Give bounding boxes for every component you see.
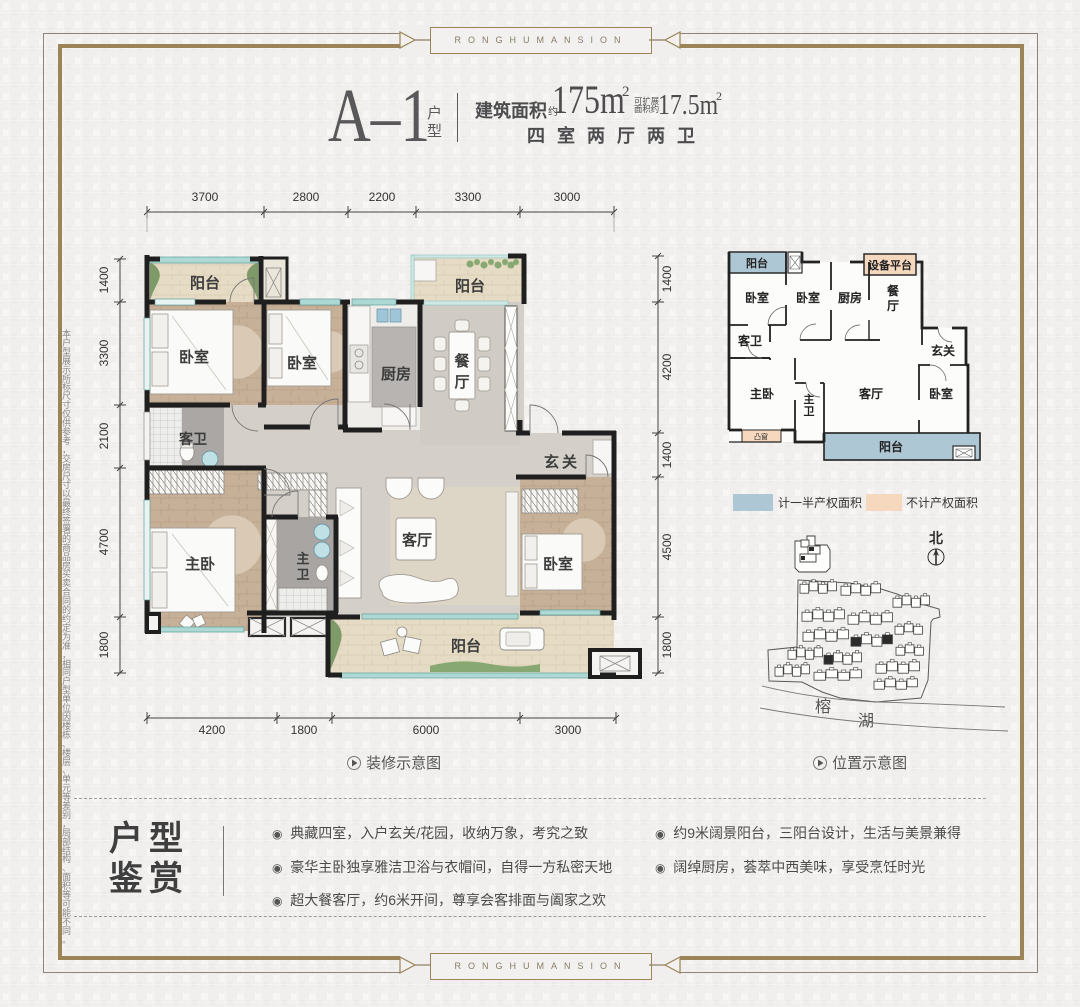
svg-text:3300: 3300 bbox=[97, 339, 111, 366]
svg-text:客卫: 客卫 bbox=[178, 431, 207, 447]
svg-text:1400: 1400 bbox=[97, 266, 111, 293]
svg-text:1800: 1800 bbox=[97, 631, 111, 658]
svg-text:计一半产权面积: 计一半产权面积 bbox=[778, 496, 862, 510]
svg-text:3300: 3300 bbox=[455, 190, 482, 204]
svg-text:3000: 3000 bbox=[555, 723, 582, 737]
svg-text:厨房: 厨房 bbox=[381, 365, 411, 383]
svg-text:玄关: 玄关 bbox=[931, 343, 955, 358]
svg-text:4200: 4200 bbox=[660, 353, 674, 380]
svg-text:客厅: 客厅 bbox=[858, 386, 883, 401]
svg-text:客卫: 客卫 bbox=[737, 333, 762, 348]
svg-text:阳台: 阳台 bbox=[746, 256, 768, 270]
svg-text:卧室: 卧室 bbox=[796, 290, 820, 305]
svg-text:1800: 1800 bbox=[291, 723, 318, 737]
svg-text:榕: 榕 bbox=[815, 698, 831, 716]
svg-text:主: 主 bbox=[804, 392, 815, 406]
svg-text:客厅: 客厅 bbox=[401, 531, 432, 549]
svg-text:卧室: 卧室 bbox=[543, 555, 573, 573]
svg-text:4200: 4200 bbox=[199, 723, 226, 737]
svg-text:卧室: 卧室 bbox=[179, 348, 209, 366]
svg-text:3700: 3700 bbox=[192, 190, 219, 204]
svg-text:阳台: 阳台 bbox=[879, 439, 903, 454]
svg-text:卧室: 卧室 bbox=[745, 290, 769, 305]
svg-text:2100: 2100 bbox=[97, 422, 111, 449]
svg-text:2800: 2800 bbox=[293, 190, 320, 204]
svg-text:不计产权面积: 不计产权面积 bbox=[906, 496, 978, 510]
svg-text:餐: 餐 bbox=[887, 283, 900, 298]
svg-text:北: 北 bbox=[929, 530, 943, 546]
svg-text:主: 主 bbox=[296, 551, 309, 566]
svg-text:1400: 1400 bbox=[660, 265, 674, 292]
svg-text:卫: 卫 bbox=[804, 405, 815, 418]
svg-text:2200: 2200 bbox=[369, 190, 396, 204]
svg-text:厨房: 厨房 bbox=[838, 290, 862, 305]
svg-text:餐: 餐 bbox=[454, 352, 470, 370]
svg-text:卫: 卫 bbox=[296, 567, 309, 582]
svg-text:厅: 厅 bbox=[887, 299, 899, 313]
svg-text:阳台: 阳台 bbox=[451, 637, 481, 655]
svg-text:卧室: 卧室 bbox=[929, 386, 953, 401]
svg-text:阳台: 阳台 bbox=[455, 277, 485, 295]
svg-text:阳台: 阳台 bbox=[190, 274, 220, 292]
svg-text:主卧: 主卧 bbox=[185, 555, 215, 573]
svg-text:卧室: 卧室 bbox=[287, 354, 317, 372]
svg-text:凸窗: 凸窗 bbox=[754, 432, 768, 441]
svg-text:湖: 湖 bbox=[858, 712, 874, 730]
svg-text:玄关: 玄关 bbox=[544, 453, 580, 471]
svg-text:设备平台: 设备平台 bbox=[868, 258, 912, 272]
svg-text:1400: 1400 bbox=[660, 441, 674, 468]
svg-text:4700: 4700 bbox=[97, 528, 111, 555]
svg-text:1800: 1800 bbox=[660, 631, 674, 658]
svg-text:厅: 厅 bbox=[454, 374, 469, 391]
svg-text:4500: 4500 bbox=[660, 533, 674, 560]
svg-text:主卧: 主卧 bbox=[750, 386, 774, 401]
svg-text:3000: 3000 bbox=[554, 190, 581, 204]
svg-text:6000: 6000 bbox=[413, 723, 440, 737]
